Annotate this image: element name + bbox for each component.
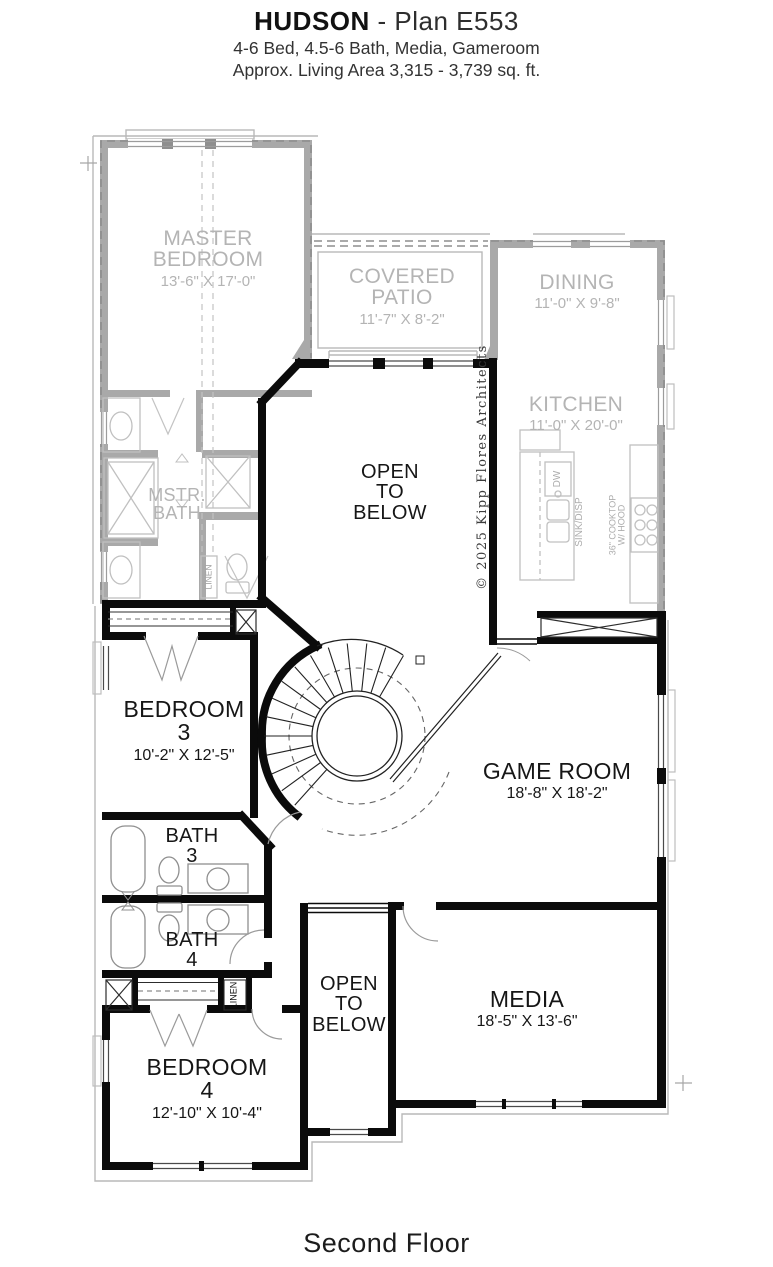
room-label-open-to-below-upper: OPEN TO BELOW [353, 462, 427, 523]
room-label-media: MEDIA 18'-5" X 13'-6" [476, 988, 577, 1031]
floor-label: Second Floor [0, 1228, 773, 1259]
spiral-staircase [264, 639, 501, 835]
room-label-bedroom-4: BEDROOM 4 12'-10" X 10'-4" [147, 1056, 268, 1122]
floor-plan-drawing [0, 0, 773, 1267]
room-label-game-room: GAME ROOM 18'-8" X 18'-2" [483, 760, 631, 803]
room-label-master-bedroom: MASTER BEDROOM 13'-6" X 17'-0" [153, 228, 264, 289]
kitchen-counter [630, 445, 658, 603]
sink-disp-label: SINK/DISP [575, 497, 586, 546]
room-label-kitchen: KITCHEN 11'-0" X 20'-0" [529, 394, 623, 434]
dishwasher-label: DW [553, 471, 564, 488]
plan-subtitle-1: 4-6 Bed, 4.5-6 Bath, Media, Gameroom [0, 38, 773, 59]
tub-icon [111, 906, 145, 968]
plan-title: HUDSON - Plan E553 [0, 6, 773, 37]
plan-name: HUDSON [254, 6, 370, 36]
sink-icon [207, 909, 229, 931]
sink-icon [547, 500, 569, 520]
plan-subtitle-2: Approx. Living Area 3,315 - 3,739 sq. ft… [0, 60, 773, 81]
kitchen-fixtures [520, 430, 658, 603]
tub-icon [111, 826, 145, 892]
sink-icon [110, 412, 132, 440]
room-label-mstr-bath: MSTR. BATH [148, 486, 206, 522]
room-label-bath-3: BATH 3 [165, 826, 218, 867]
toilet-icon [227, 554, 247, 580]
room-label-bedroom-3: BEDROOM 3 10'-2" X 12'-5" [124, 698, 245, 764]
room-label-covered-patio: COVERED PATIO 11'-7" X 8'-2" [349, 266, 455, 327]
floor-plan-page: HUDSON - Plan E553 4-6 Bed, 4.5-6 Bath, … [0, 0, 773, 1267]
plan-number: - Plan E553 [370, 6, 519, 36]
room-label-bath-4: BATH 4 [165, 930, 218, 971]
sink-icon [207, 868, 229, 890]
cooktop-label: 36" COOKTOP W/ HOOD [609, 495, 628, 556]
sink-icon [110, 556, 132, 584]
master-bedroom-interior [152, 150, 268, 598]
linen-label-master: LINEN [205, 564, 214, 589]
room-label-open-to-below-lower: OPEN TO BELOW [312, 974, 386, 1035]
room-label-dining: DINING 11'-0" X 9'-8" [534, 272, 619, 312]
copyright-notice: © 2025 Kipp Flores Architects [476, 344, 490, 590]
title-block: HUDSON - Plan E553 4-6 Bed, 4.5-6 Bath, … [0, 6, 773, 81]
linen-label-hall: LINEN [229, 982, 238, 1009]
